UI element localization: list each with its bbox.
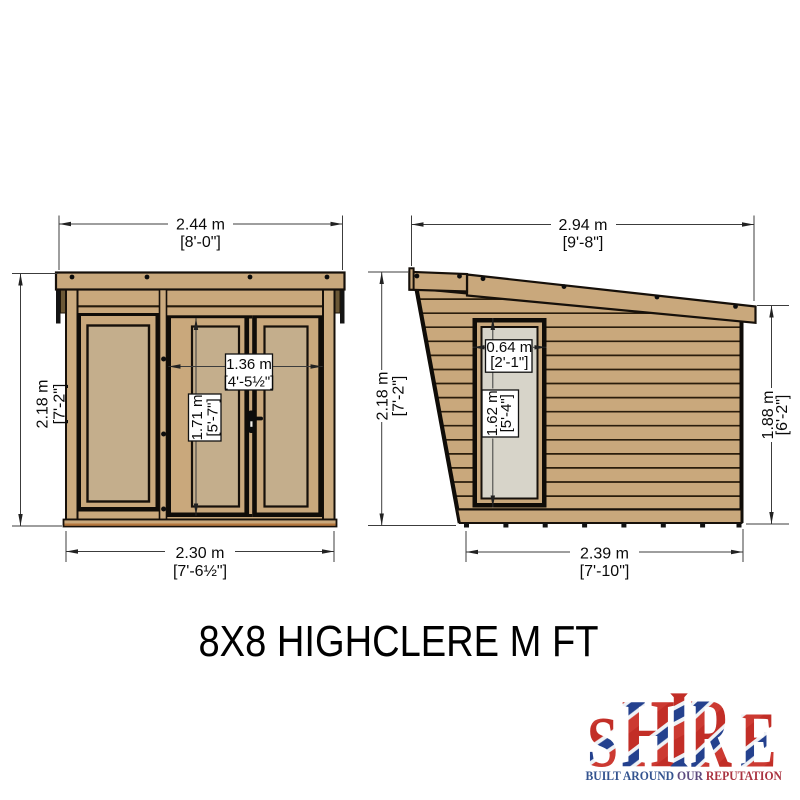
svg-text:1.36 m: 1.36 m [226, 356, 272, 373]
svg-text:[5'-4"]: [5'-4"] [498, 394, 515, 432]
svg-text:[7'-10"]: [7'-10"] [580, 563, 630, 580]
svg-text:[4'-5½"]: [4'-5½"] [224, 374, 275, 391]
svg-text:1.71 m: 1.71 m [189, 395, 206, 441]
svg-text:[7'-2"]: [7'-2"] [391, 376, 408, 417]
svg-text:2.39 m: 2.39 m [580, 546, 629, 563]
svg-text:BUILT AROUND OUR REPUTATION: BUILT AROUND OUR REPUTATION [586, 769, 783, 783]
svg-text:[5'-7"]: [5'-7"] [205, 398, 222, 436]
svg-text:2.30 m: 2.30 m [176, 545, 225, 562]
svg-text:2.44 m: 2.44 m [176, 217, 225, 234]
svg-text:[6'-2"]: [6'-2"] [774, 395, 791, 436]
svg-text:2.18 m: 2.18 m [374, 372, 391, 421]
svg-text:2.94 m: 2.94 m [559, 217, 608, 234]
svg-text:[2'-1"]: [2'-1"] [490, 354, 528, 371]
svg-text:[7'-2"]: [7'-2"] [52, 384, 69, 425]
svg-text:[7'-6½"]: [7'-6½"] [173, 563, 227, 580]
svg-text:8X8 HIGHCLERE M FT: 8X8 HIGHCLERE M FT [199, 617, 599, 666]
svg-text:[9'-8"]: [9'-8"] [563, 235, 604, 252]
svg-text:[8'-0"]: [8'-0"] [180, 234, 221, 251]
svg-text:2.18 m: 2.18 m [35, 380, 52, 429]
